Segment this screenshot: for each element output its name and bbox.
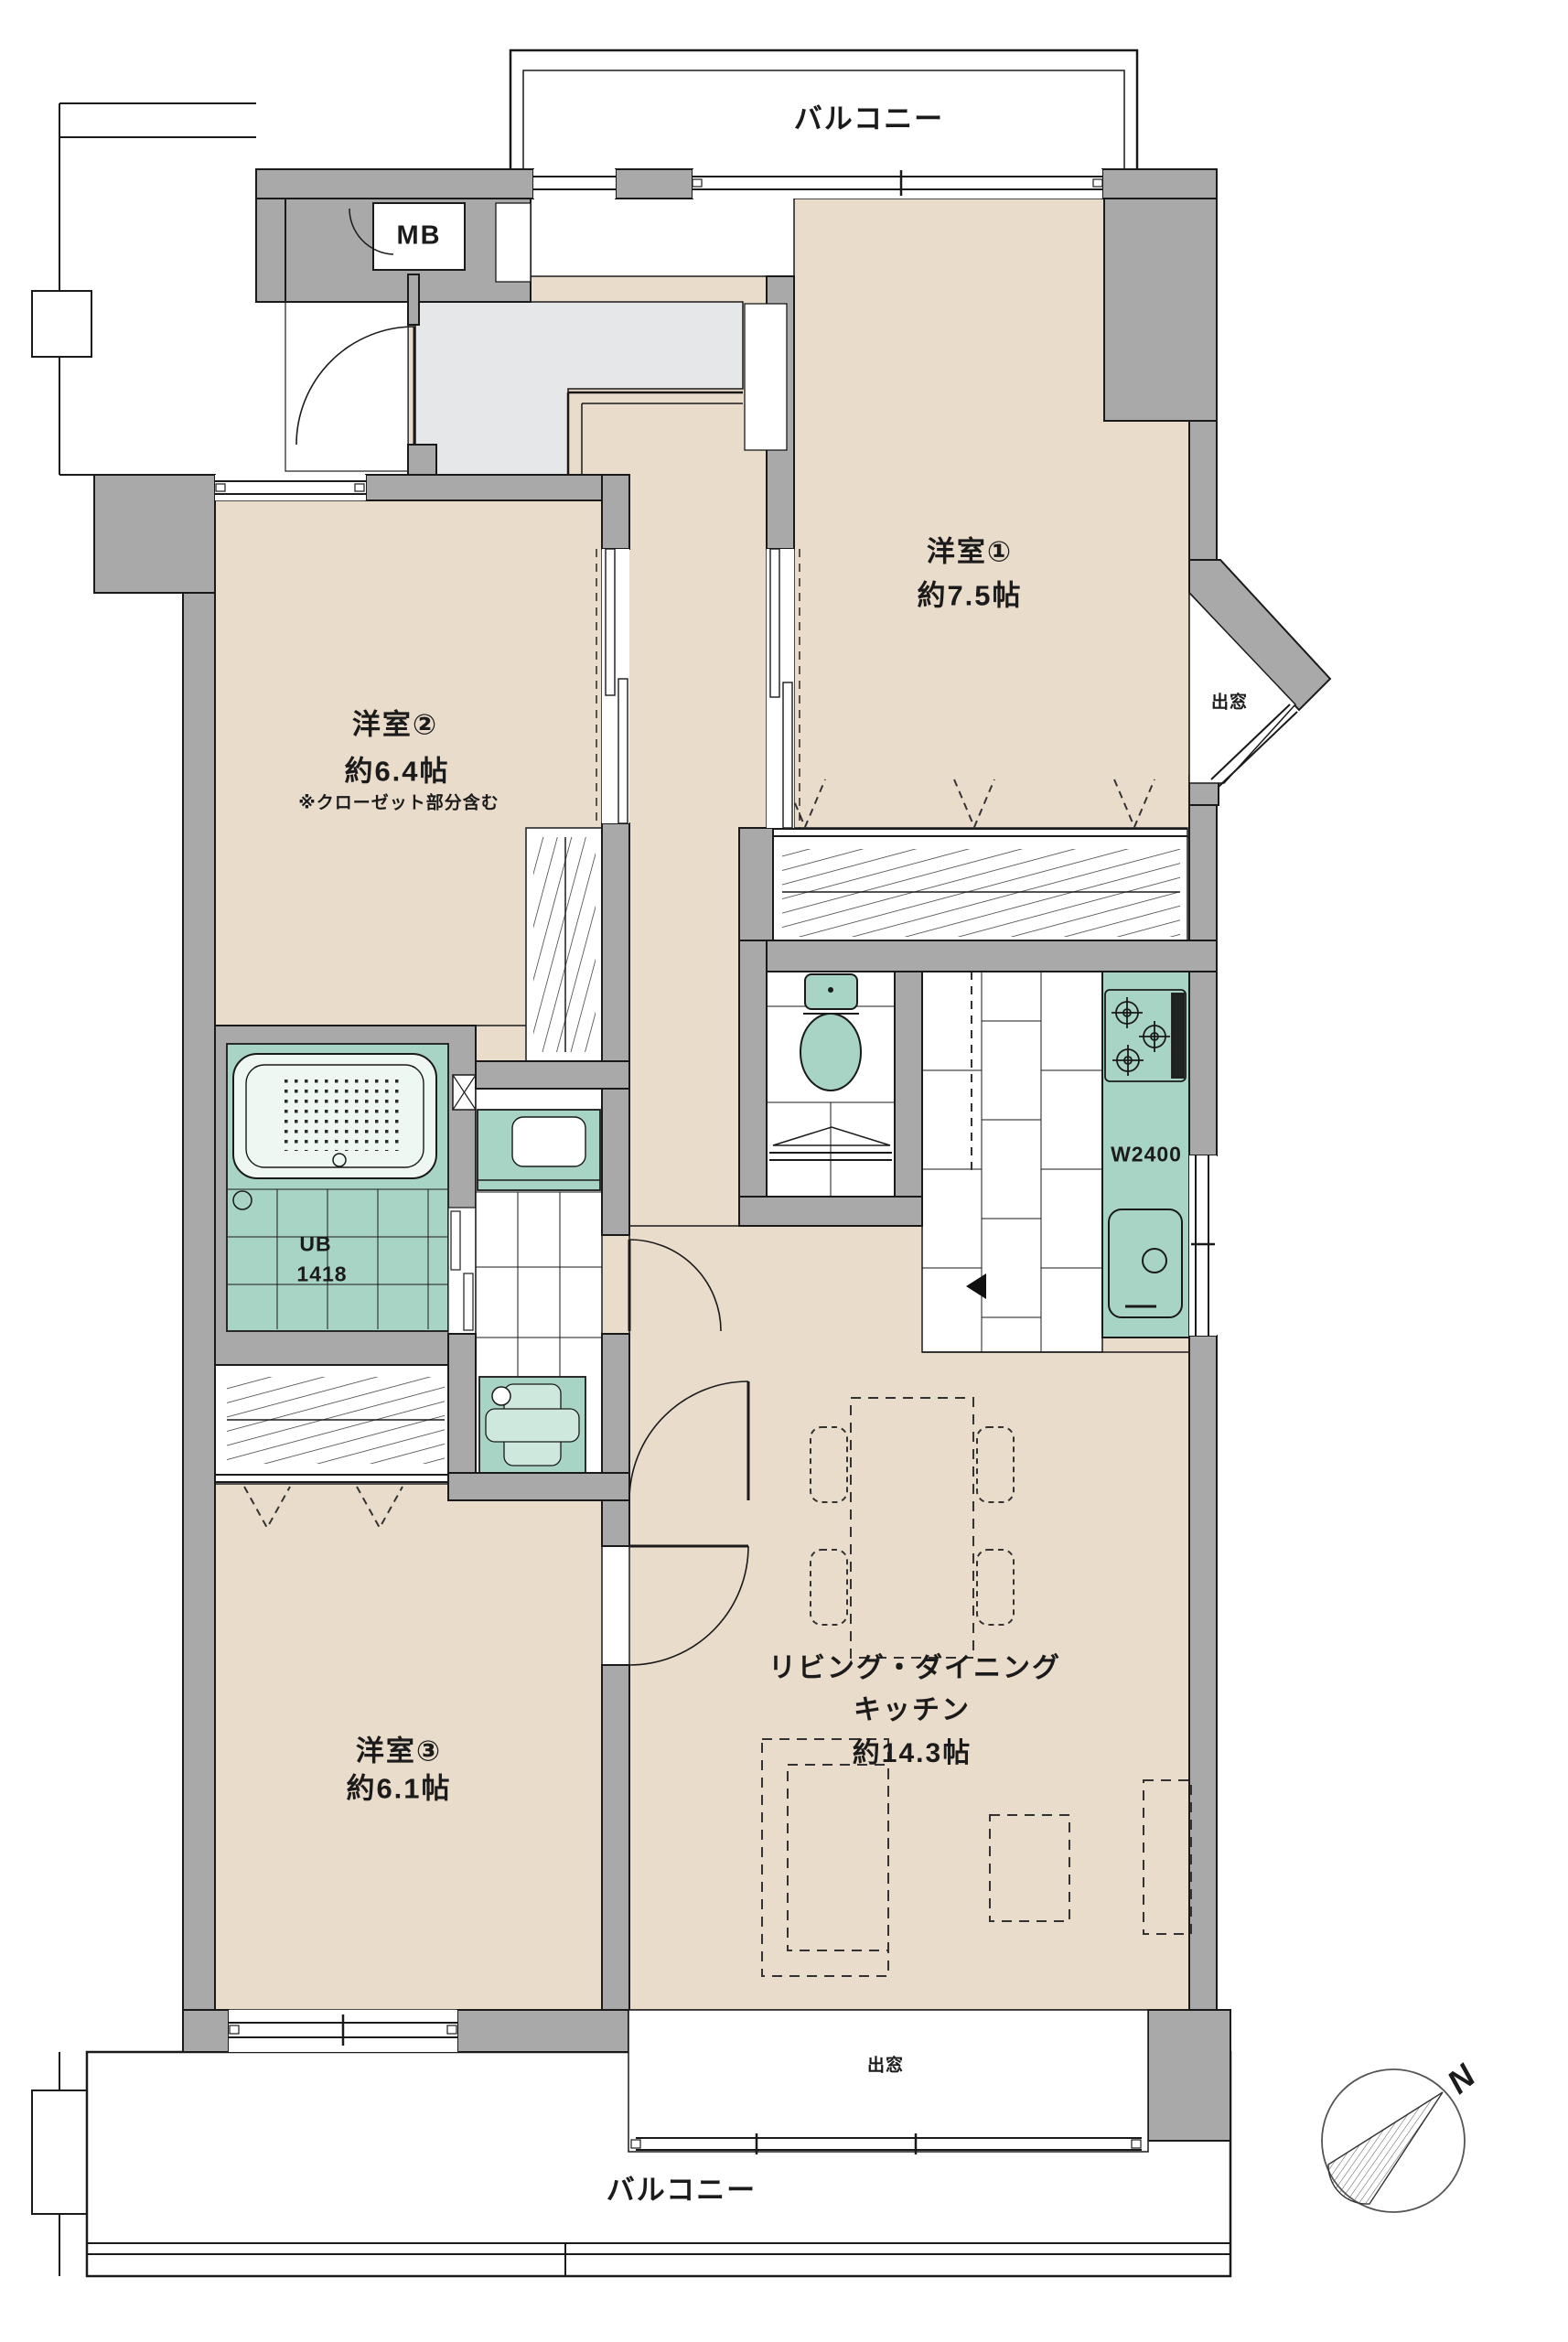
bay-window-bottom [628,2010,1148,2154]
toilet-room [767,972,895,1197]
kitchen-width-label: W2400 [1111,1143,1182,1167]
room1-area: 約7.5帖 [917,573,1022,614]
balcony-bottom-label: バルコニー [607,2167,757,2208]
room2-area: 約6.4帖 [344,748,449,790]
ldk-floor [629,1226,1189,2010]
unit-bath-label-2: 1418 [296,1262,347,1287]
bay-window-bottom-label: 出窓 [867,2052,904,2077]
unit-bath-label-1: UB [299,1232,331,1257]
exterior-pillars [32,291,91,2214]
bathroom [215,1026,476,1365]
vanity-icon [478,1110,600,1190]
room2-note: ※クローゼット部分含む [298,790,499,814]
compass-icon [1322,2069,1465,2212]
washer-pan-icon [479,1377,585,1473]
pipe-space-icon [453,1075,476,1110]
room1-name: 洋室① [927,529,1013,570]
ldk-name-line2: キッチン [854,1687,971,1727]
room2-name: 洋室② [352,702,438,743]
meter-box-label: MB [396,221,441,252]
washroom [476,1089,602,1475]
room3-name: 洋室③ [356,1728,442,1769]
ldk-name-line1: リビング・ダイニング [768,1645,1061,1685]
room3-area: 約6.1帖 [346,1766,451,1807]
bathtub-icon [233,1054,436,1178]
ldk-area: 約14.3帖 [853,1730,972,1770]
toilet-icon [800,974,861,1090]
entry-niche [745,304,787,450]
entrance-alcove [285,302,408,471]
floorplan-canvas: バルコニー MB 洋室① 約7.5帖 出窓 洋室② 約6.4帖 ※クローゼット部… [0,0,1568,2342]
balcony-top-label: バルコニー [794,96,944,137]
floorplan-drawing [0,0,1568,2342]
bay-window-right-label: 出窓 [1211,689,1248,714]
